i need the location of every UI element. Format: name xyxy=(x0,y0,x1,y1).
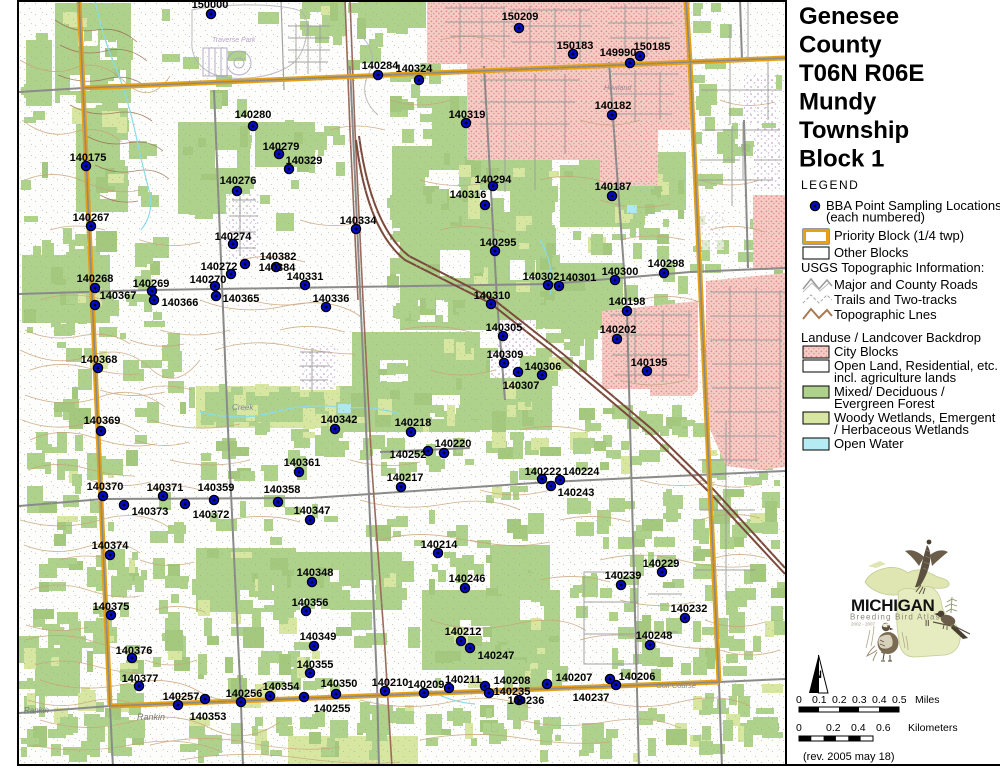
svg-text:140220: 140220 xyxy=(435,438,472,450)
svg-text:140342: 140342 xyxy=(321,414,358,426)
svg-text:(each numbered): (each numbered) xyxy=(826,210,925,225)
svg-text:140211: 140211 xyxy=(445,674,481,686)
svg-text:150185: 150185 xyxy=(634,41,671,53)
svg-text:incl. agriculture lands: incl. agriculture lands xyxy=(834,370,957,385)
svg-text:140370: 140370 xyxy=(87,481,124,493)
svg-text:Mundy: Mundy xyxy=(799,89,877,116)
svg-text:140355: 140355 xyxy=(297,659,334,671)
svg-text:Howland: Howland xyxy=(604,85,632,92)
svg-text:140269: 140269 xyxy=(133,278,170,290)
svg-text:0.4: 0.4 xyxy=(872,694,887,706)
svg-text:Genesee: Genesee xyxy=(799,3,899,30)
svg-text:140248: 140248 xyxy=(636,630,673,642)
svg-text:140175: 140175 xyxy=(70,152,107,164)
svg-text:140300: 140300 xyxy=(602,266,639,278)
svg-text:140316: 140316 xyxy=(450,189,487,201)
svg-text:0: 0 xyxy=(796,694,802,706)
svg-text:140334: 140334 xyxy=(340,215,378,227)
svg-text:140212: 140212 xyxy=(445,626,482,638)
svg-text:140198: 140198 xyxy=(609,296,646,308)
svg-text:140371: 140371 xyxy=(147,482,184,494)
svg-text:140256: 140256 xyxy=(226,688,263,700)
svg-text:LEGEND: LEGEND xyxy=(801,178,859,192)
svg-text:140210: 140210 xyxy=(372,677,409,689)
svg-text:140298: 140298 xyxy=(648,258,685,270)
svg-text:140236: 140236 xyxy=(508,695,545,707)
svg-text:Other Blocks: Other Blocks xyxy=(834,245,909,260)
svg-text:140284: 140284 xyxy=(362,60,400,72)
svg-text:140218: 140218 xyxy=(395,417,432,429)
svg-text:N: N xyxy=(814,669,822,681)
svg-text:Creek: Creek xyxy=(232,403,254,412)
svg-text:0.1: 0.1 xyxy=(812,694,827,706)
svg-text:140270: 140270 xyxy=(190,274,227,286)
svg-text:Landuse / Landcover Backdrop: Landuse / Landcover Backdrop xyxy=(801,330,981,345)
svg-text:150209: 150209 xyxy=(502,11,539,23)
svg-text:Kilometers: Kilometers xyxy=(908,722,958,734)
svg-text:140349: 140349 xyxy=(300,631,337,643)
svg-text:140376: 140376 xyxy=(116,645,153,657)
svg-text:Evergreen Forest: Evergreen Forest xyxy=(834,396,935,411)
svg-text:140361: 140361 xyxy=(284,457,321,469)
svg-text:140329: 140329 xyxy=(286,155,323,167)
svg-text:140207: 140207 xyxy=(556,672,593,684)
svg-text:0.2: 0.2 xyxy=(832,694,847,706)
svg-text:140377: 140377 xyxy=(122,673,159,685)
svg-text:140324: 140324 xyxy=(396,63,434,75)
svg-text:140257: 140257 xyxy=(163,691,200,703)
svg-text:140232: 140232 xyxy=(671,603,708,615)
svg-text:140255: 140255 xyxy=(314,703,351,715)
svg-text:140372: 140372 xyxy=(193,509,230,521)
svg-text:140195: 140195 xyxy=(631,357,668,369)
svg-text:140217: 140217 xyxy=(387,472,424,484)
svg-text:140276: 140276 xyxy=(220,175,257,187)
svg-text:0: 0 xyxy=(796,722,802,734)
svg-text:140239: 140239 xyxy=(605,570,642,582)
svg-text:140272: 140272 xyxy=(201,261,238,273)
svg-text:Rankin: Rankin xyxy=(137,712,165,722)
svg-text:140214: 140214 xyxy=(421,539,459,551)
svg-text:Traverse Park: Traverse Park xyxy=(212,37,256,44)
svg-text:140187: 140187 xyxy=(595,181,632,193)
svg-text:0.3: 0.3 xyxy=(852,694,867,706)
svg-text:140368: 140368 xyxy=(81,354,118,366)
svg-text:Rankin: Rankin xyxy=(24,706,49,715)
svg-text:140366: 140366 xyxy=(162,297,199,309)
svg-text:2002 - 2007: 2002 - 2007 xyxy=(851,622,876,627)
svg-text:140336: 140336 xyxy=(313,293,350,305)
svg-text:140279: 140279 xyxy=(263,141,300,153)
svg-text:140347: 140347 xyxy=(294,505,331,517)
svg-text:140268: 140268 xyxy=(77,273,114,285)
svg-text:140354: 140354 xyxy=(263,681,301,693)
svg-text:140356: 140356 xyxy=(292,597,329,609)
svg-text:140367: 140367 xyxy=(100,290,137,302)
svg-text:II: II xyxy=(925,619,929,628)
svg-text:140301: 140301 xyxy=(560,272,597,284)
svg-text:Priority Block (1/4 twp): Priority Block (1/4 twp) xyxy=(834,228,964,243)
svg-text:City Blocks: City Blocks xyxy=(834,344,899,359)
svg-text:/ Herbaceous Wetlands: / Herbaceous Wetlands xyxy=(834,422,969,437)
svg-text:140373: 140373 xyxy=(132,506,169,518)
svg-text:Township: Township xyxy=(799,117,909,144)
svg-text:140331: 140331 xyxy=(287,271,324,283)
svg-text:140365: 140365 xyxy=(223,293,260,305)
svg-text:140243: 140243 xyxy=(558,487,595,499)
svg-text:Golf Course: Golf Course xyxy=(656,681,696,690)
svg-text:County: County xyxy=(799,32,882,59)
svg-text:149990: 149990 xyxy=(600,47,637,59)
svg-text:Trails and Two-tracks: Trails and Two-tracks xyxy=(834,292,957,307)
svg-text:140305: 140305 xyxy=(486,322,523,334)
svg-text:140267: 140267 xyxy=(73,212,110,224)
svg-text:140222: 140222 xyxy=(525,466,562,478)
svg-text:140274: 140274 xyxy=(215,231,253,243)
svg-text:140307: 140307 xyxy=(503,380,540,392)
svg-text:0.6: 0.6 xyxy=(876,722,891,734)
svg-text:140224: 140224 xyxy=(563,466,601,478)
svg-text:0.4: 0.4 xyxy=(851,722,866,734)
svg-text:140229: 140229 xyxy=(643,558,680,570)
svg-text:(rev. 2005 may 18): (rev. 2005 may 18) xyxy=(803,751,895,763)
svg-text:0.2: 0.2 xyxy=(826,722,841,734)
svg-text:140294: 140294 xyxy=(475,174,513,186)
svg-text:T06N R06E: T06N R06E xyxy=(799,60,924,87)
svg-text:140350: 140350 xyxy=(321,678,358,690)
svg-text:140353: 140353 xyxy=(190,711,227,723)
svg-text:140206: 140206 xyxy=(619,671,656,683)
svg-text:Topographic Lnes: Topographic Lnes xyxy=(834,307,937,322)
svg-text:140237: 140237 xyxy=(573,692,610,704)
svg-text:140309: 140309 xyxy=(487,349,524,361)
svg-text:140252: 140252 xyxy=(390,449,427,461)
svg-text:140359: 140359 xyxy=(198,482,235,494)
svg-text:140319: 140319 xyxy=(449,109,486,121)
svg-text:140182: 140182 xyxy=(595,100,632,112)
svg-text:150183: 150183 xyxy=(557,40,594,52)
svg-text:Open Water: Open Water xyxy=(834,436,904,451)
svg-text:140375: 140375 xyxy=(93,601,130,613)
svg-text:0.5: 0.5 xyxy=(892,694,907,706)
svg-text:140246: 140246 xyxy=(449,573,486,585)
svg-text:Block 1: Block 1 xyxy=(799,146,884,173)
svg-text:140302: 140302 xyxy=(523,271,560,283)
svg-text:140369: 140369 xyxy=(84,415,121,427)
svg-text:140374: 140374 xyxy=(92,540,130,552)
svg-text:140358: 140358 xyxy=(264,484,301,496)
svg-text:Major and County Roads: Major and County Roads xyxy=(834,277,978,292)
svg-text:USGS Topographic Information:: USGS Topographic Information: xyxy=(801,260,984,275)
svg-text:140209: 140209 xyxy=(408,679,445,691)
svg-text:140306: 140306 xyxy=(525,361,562,373)
svg-text:140202: 140202 xyxy=(600,324,637,336)
svg-text:140247: 140247 xyxy=(478,650,515,662)
svg-text:140295: 140295 xyxy=(480,237,517,249)
svg-text:140310: 140310 xyxy=(474,290,511,302)
svg-text:Miles: Miles xyxy=(915,694,940,706)
svg-text:140280: 140280 xyxy=(235,109,272,121)
svg-text:140348: 140348 xyxy=(297,567,334,579)
